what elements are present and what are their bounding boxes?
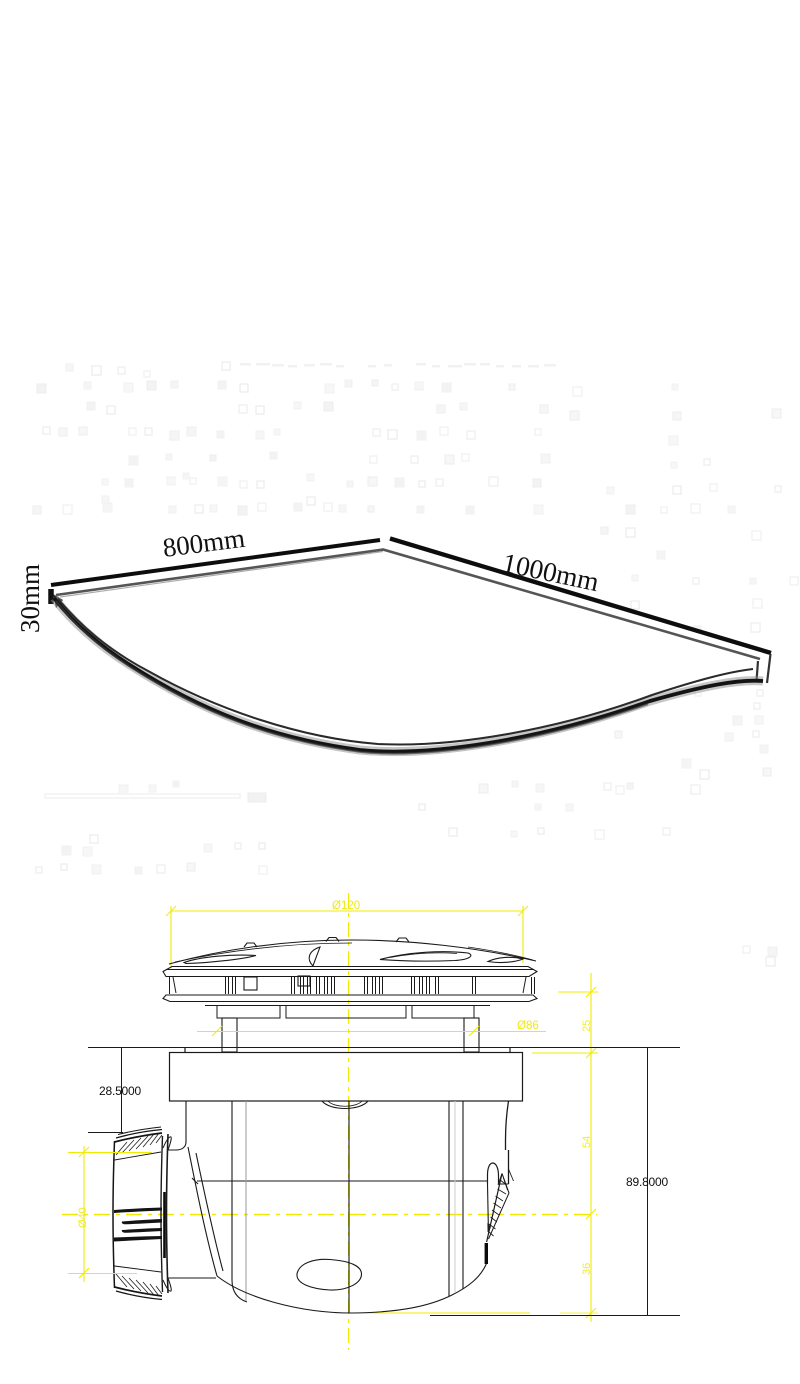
svg-text:Ø40: Ø40	[77, 1207, 89, 1228]
svg-text:Ø86: Ø86	[517, 1020, 539, 1032]
svg-text:Ø120: Ø120	[332, 900, 360, 912]
svg-text:36: 36	[581, 1263, 593, 1275]
svg-text:28.5000: 28.5000	[99, 1084, 142, 1098]
svg-text:25: 25	[581, 1020, 593, 1032]
svg-text:89.8000: 89.8000	[626, 1175, 669, 1189]
svg-text:30mm: 30mm	[15, 564, 45, 633]
svg-text:54: 54	[581, 1136, 593, 1148]
